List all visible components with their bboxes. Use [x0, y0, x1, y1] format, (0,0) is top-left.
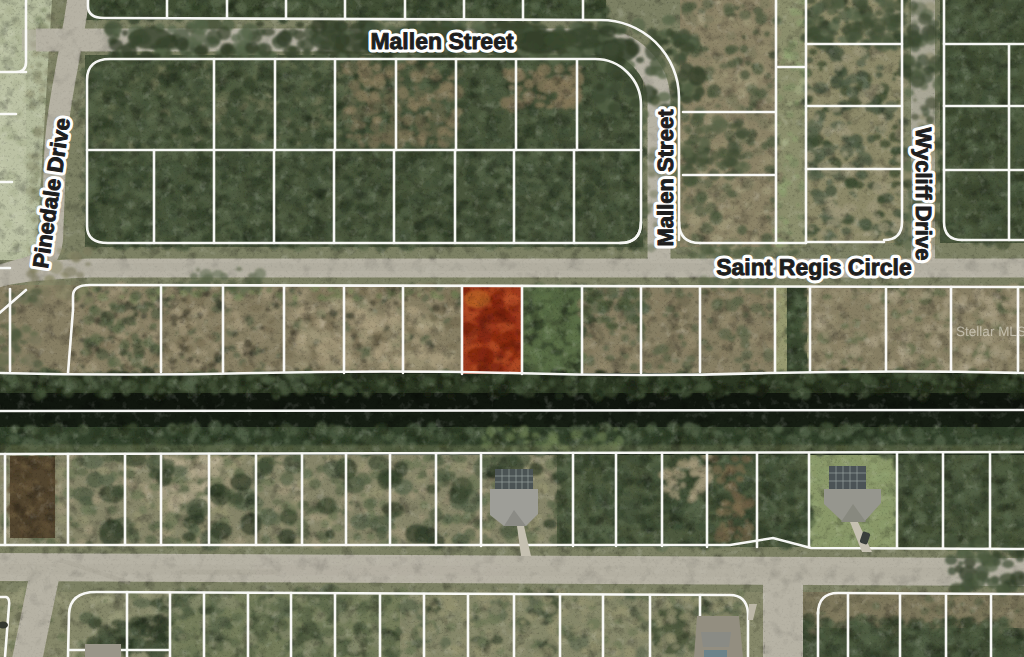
svg-text:Wycliff Drive: Wycliff Drive — [911, 128, 936, 261]
svg-text:Mallen Street: Mallen Street — [653, 109, 678, 247]
svg-text:Stellar MLS: Stellar MLS — [956, 324, 1024, 339]
svg-text:Mallen Street: Mallen Street — [370, 28, 513, 54]
svg-text:Saint Regis Circle: Saint Regis Circle — [716, 254, 912, 280]
